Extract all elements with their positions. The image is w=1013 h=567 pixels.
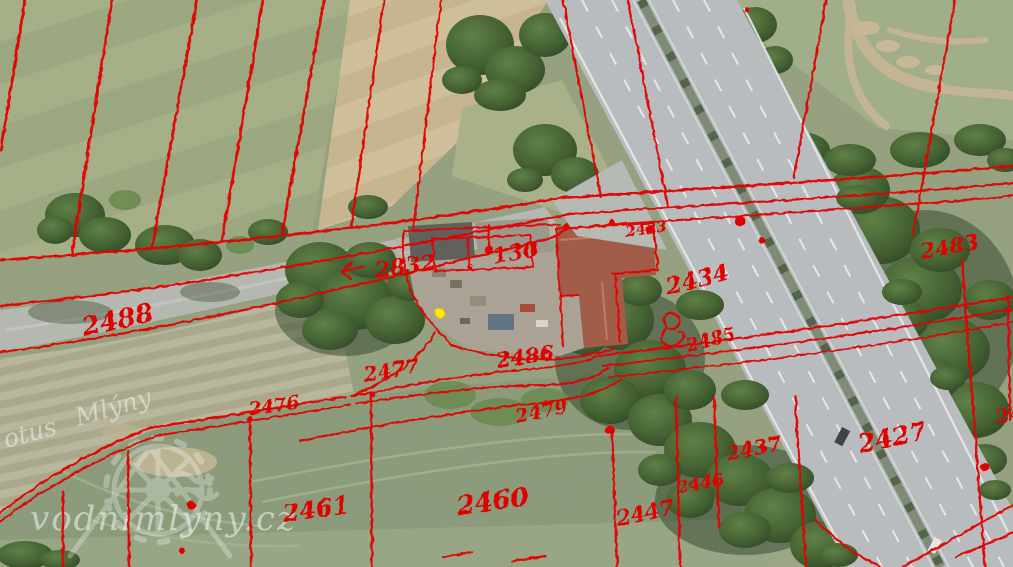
watermark-site-text: vodnimlyny.cz bbox=[30, 499, 297, 539]
yellow-survey-point bbox=[435, 308, 445, 318]
aerial-cadastral-map: vodnimlyny.cz otus Mlýny bbox=[0, 0, 1013, 567]
marker-s: s bbox=[466, 260, 474, 275]
cadastral-map-viewport[interactable]: vodnimlyny.cz otus Mlýny bbox=[0, 0, 1013, 567]
